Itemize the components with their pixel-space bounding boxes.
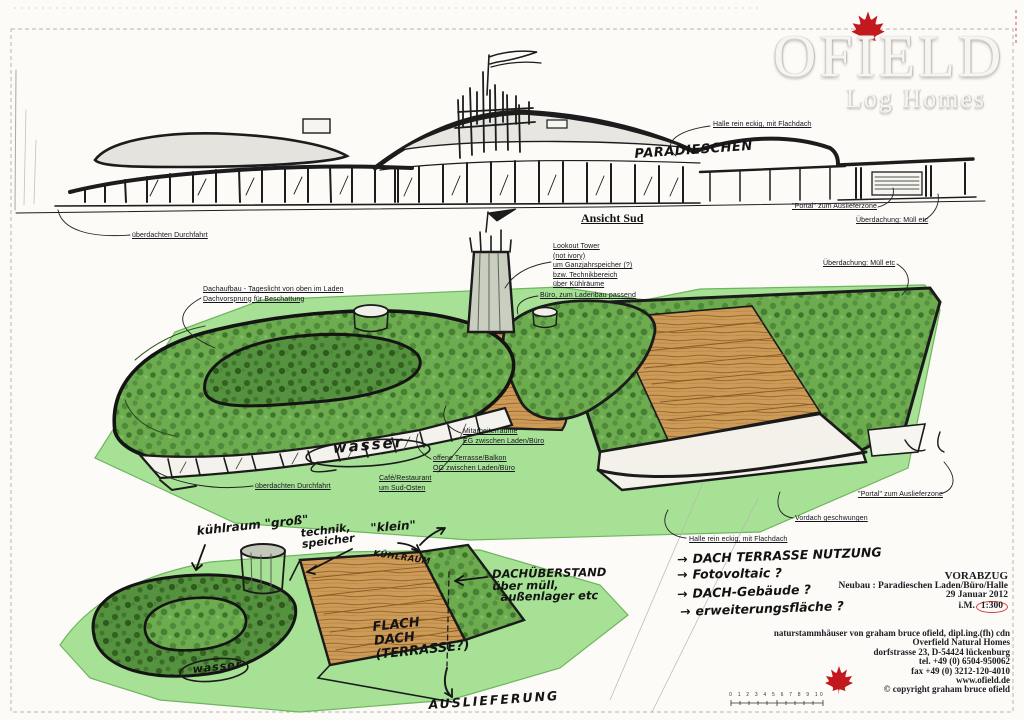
note-fotovoltaic: →Fotovoltaic ? — [677, 565, 782, 582]
title-block: VORABZUG Neubau : Paradieschen Laden/Bür… — [838, 572, 1008, 613]
annotation-halle-flachdach-mid: Halle rein eckig, mit Flachdach — [689, 535, 787, 545]
arrow-icon: → — [677, 551, 688, 566]
annotation-mitarbeiterraeume: MitarbeiterräumeEG zwischen Laden/Büro — [463, 427, 544, 446]
logo-wordmark: OFIELD — [773, 22, 1004, 91]
arrow-icon: → — [680, 603, 691, 618]
annotation-terrasse-balkon: offene Terrasse/BalkonOG zwischen Laden/… — [433, 454, 515, 473]
annotation-portal-mid: "Portal" zum Auslieferzone — [858, 490, 943, 500]
annotation-ueberdachung-top: Überdachung: Müll etc — [856, 216, 928, 226]
annotation-buero: Büro, zum Ladenbau passend — [540, 291, 636, 301]
title-block-date: 29 Januar 2012 — [838, 591, 1008, 601]
scale-value-circled: 1:300 — [976, 601, 1008, 614]
address-block: naturstammhäuser von graham bruce ofield… — [774, 629, 1010, 695]
annotation-lookout-tower: Lookout Tower(not ivory) um Ganzjahrspei… — [553, 242, 632, 290]
arrow-icon: → — [677, 567, 688, 582]
arrow-icon: → — [677, 586, 688, 601]
annotation-durchfahrt-mid: überdachten Durchfahrt — [255, 482, 331, 492]
annotation-ueberdachung-mid: Überdachung: Müll etc — [823, 259, 895, 269]
scale-bar-ruler — [731, 700, 823, 706]
annotation-portal-top: "Portal" zum Auslieferzone — [792, 202, 877, 212]
title-block-scale: i.M.1:300 — [838, 601, 1008, 614]
annotation-cafe-restaurant: Café/Restaurantum Sud-Osten — [379, 474, 431, 493]
annotation-halle-flachdach-top: Halle rein eckig, mit Flachdach — [713, 120, 811, 130]
annotation-dachaufbau: Dachaufbau - Tageslicht von oben im Lade… — [203, 285, 344, 304]
view-title-ansicht-sud: Ansicht Sud — [581, 211, 643, 226]
annotation-vordach: Vordach geschwungen — [795, 514, 868, 524]
site-plan-sketch — [60, 528, 628, 712]
scale-bar-numbers: 0 1 2 3 4 5 6 7 8 9 10 — [729, 692, 825, 698]
handwriting-dachueberstand: DACHÜBERSTAND über müll, außenlager etc — [492, 567, 607, 603]
scanned-architectural-sheet: OFIELD Log Homes Halle rein eckig, mit F… — [0, 0, 1024, 720]
annotation-durchfahrt-top: überdachten Durchfahrt — [132, 231, 208, 241]
logo-subtitle: Log Homes — [846, 84, 986, 114]
